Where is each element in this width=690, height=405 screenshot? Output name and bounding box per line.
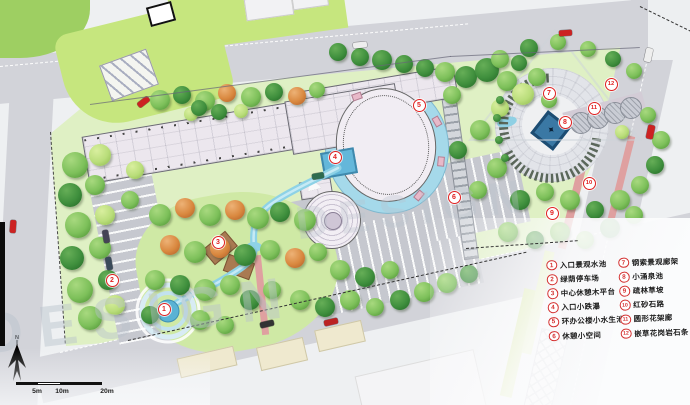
legend-label: 疏林草坡 xyxy=(633,284,665,296)
legend-item: 12嵌草花岗岩石条 xyxy=(620,324,689,341)
legend-label: 中心休憩木平台 xyxy=(561,286,616,299)
legend-label: 红砂石路 xyxy=(633,298,665,310)
legend-number-badge: 5 xyxy=(548,317,559,328)
plan-marker-2: 2 xyxy=(106,274,119,287)
plan-marker-9: 9 xyxy=(546,207,559,220)
plan-marker-6: 6 xyxy=(448,191,461,204)
plan-marker-8: 8 xyxy=(559,116,572,129)
plan-marker-7: 7 xyxy=(543,87,556,100)
legend-col-2: 7钢索景观廊架8小涌泉池9疏林草坡10红砂石路11圆形花架廊12嵌草花岗岩石条 xyxy=(618,254,689,341)
legend-label: 休憩小空间 xyxy=(562,329,601,341)
legend-number-badge: 9 xyxy=(619,286,630,297)
legend-number-badge: 3 xyxy=(547,288,558,299)
legend-item: 6休憩小空间 xyxy=(549,327,625,344)
legend-label: 小涌泉池 xyxy=(632,270,664,282)
legend-number-badge: 7 xyxy=(618,257,629,268)
plan-marker-10: 10 xyxy=(583,177,596,190)
legend-label: 入口景观水池 xyxy=(560,258,607,271)
scale-label: 10m xyxy=(55,388,69,395)
plan-marker-11: 11 xyxy=(588,102,601,115)
legend-col-1: 1入口景观水池2绿荫停车场3中心休憩木平台4入口小跌瀑5环办公楼小水生池6休憩小… xyxy=(546,256,625,344)
legend-number-badge: 4 xyxy=(548,302,559,313)
legend-label: 入口小跌瀑 xyxy=(561,301,600,313)
legend-label: 嵌草花岗岩石条 xyxy=(634,326,689,339)
legend-label: 圆形花架廊 xyxy=(634,312,673,324)
plan-marker-1: 1 xyxy=(158,303,171,316)
legend-number-badge: 2 xyxy=(547,274,558,285)
legend-number-badge: 10 xyxy=(620,300,631,311)
legend-number-badge: 1 xyxy=(546,260,557,271)
plan-marker-5: 5 xyxy=(413,99,426,112)
legend-number-badge: 6 xyxy=(549,331,560,342)
legend-label: 绿荫停车场 xyxy=(560,272,599,284)
legend-label: 环办公楼小水生池 xyxy=(562,314,625,327)
plan-marker-4: 4 xyxy=(329,151,342,164)
legend-number-badge: 12 xyxy=(621,328,632,339)
scale-label: 5m xyxy=(32,388,42,395)
legend-number-badge: 8 xyxy=(619,272,630,283)
site-plan: ✦ ✽ N xyxy=(0,0,690,405)
plan-marker-3: 3 xyxy=(212,236,225,249)
plan-marker-12: 12 xyxy=(605,78,618,91)
scale-bar-rule xyxy=(16,382,102,385)
image-edge-artifact xyxy=(0,222,5,346)
legend-label: 钢索景观廊架 xyxy=(632,255,679,268)
marker-layer: 123456789101112 xyxy=(0,0,690,405)
scale-label: 20m xyxy=(100,388,114,395)
legend-number-badge: 11 xyxy=(620,314,631,325)
scale-bar: 5m 10m 20m xyxy=(16,380,112,402)
